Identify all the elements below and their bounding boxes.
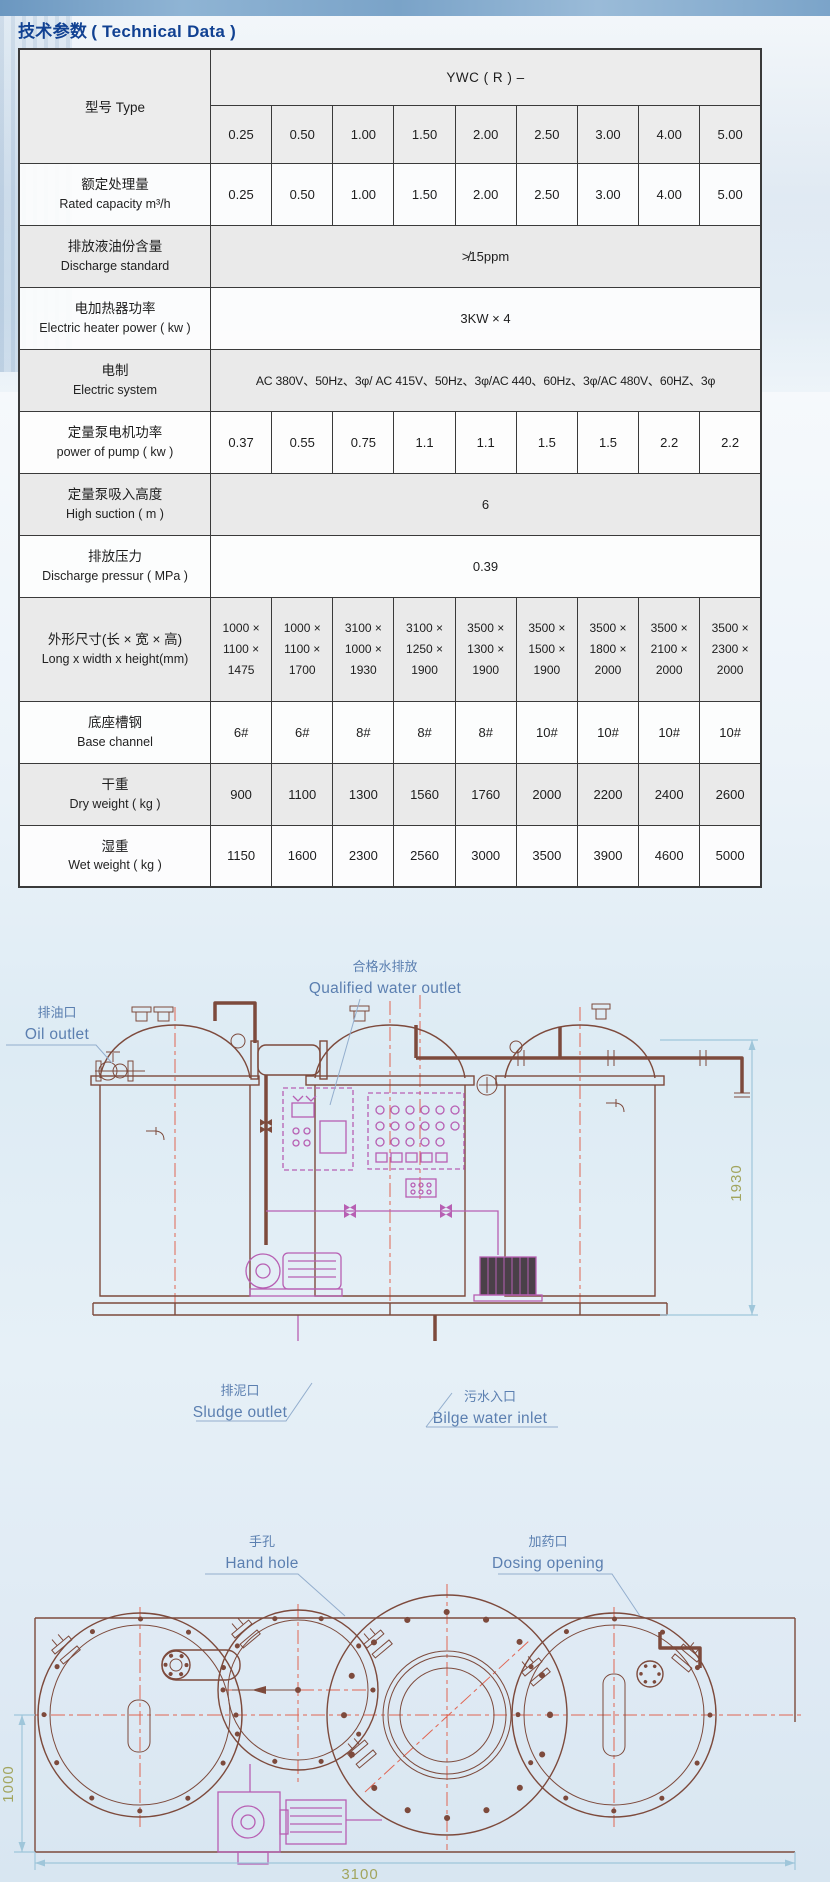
row-value: 0.25	[211, 163, 272, 225]
row-label-en: Dry weight ( kg )	[22, 796, 208, 814]
size-header-cell: 1.00	[333, 105, 394, 163]
spec-row: 湿重Wet weight ( kg )115016002300256030003…	[19, 825, 761, 887]
spec-row: 额定处理量Rated capacity m³/h0.250.501.001.50…	[19, 163, 761, 225]
row-value: 1300	[333, 763, 394, 825]
row-value: 4.00	[639, 163, 700, 225]
row-value: 1600	[272, 825, 333, 887]
row-value: 2.00	[455, 163, 516, 225]
qualified-outlet-leader	[330, 999, 360, 1105]
row-value: 2.2	[700, 411, 761, 473]
oil-outlet-leader	[6, 1045, 112, 1063]
row-value: 1100	[272, 763, 333, 825]
hand-hole-label-en: Hand hole	[225, 1555, 298, 1572]
dosing-pump	[246, 1204, 498, 1341]
qualified-outlet-label-en: Qualified water outlet	[309, 980, 462, 997]
row-value: 3.00	[577, 163, 638, 225]
oil-outlet-label-zh: 排油口	[37, 1005, 76, 1020]
row-value: 0.75	[333, 411, 394, 473]
row-value: 2200	[577, 763, 638, 825]
bilge-inlet-label-zh: 污水入口	[464, 1389, 516, 1404]
page-title-en: ( Technical Data )	[91, 22, 236, 41]
size-header-cell: 1.50	[394, 105, 455, 163]
size-header-cell: 0.25	[211, 105, 272, 163]
row-span-value: 0.39	[211, 535, 762, 597]
header-row-series: 型号 TypeYWC ( R ) –	[19, 49, 761, 105]
row-value: 900	[211, 763, 272, 825]
technical-data-table: 型号 TypeYWC ( R ) –0.250.501.001.502.002.…	[18, 48, 762, 888]
row-value: 5000	[700, 825, 761, 887]
row-label-en: Wet weight ( kg )	[22, 857, 208, 875]
type-header: 型号 Type	[19, 49, 211, 163]
row-label: 排放压力Discharge pressur ( MPa )	[19, 535, 211, 597]
width-dimension: 1000	[0, 1715, 35, 1852]
row-span-value: ≯15ppm	[211, 225, 762, 287]
row-label-en: Discharge standard	[22, 258, 208, 276]
row-value: 1.1	[394, 411, 455, 473]
row-label-zh: 排放压力	[22, 547, 208, 568]
row-value: 1.5	[577, 411, 638, 473]
row-value: 4600	[639, 825, 700, 887]
spec-row: 电制Electric systemAC 380V、50Hz、3φ/ AC 415…	[19, 349, 761, 411]
plan-centerlines	[25, 1584, 805, 1850]
dosing-label-en: Dosing opening	[492, 1555, 604, 1572]
size-header-cell: 2.50	[516, 105, 577, 163]
row-label: 底座槽钢Base channel	[19, 701, 211, 763]
page-title: 技术参数( Technical Data )	[18, 17, 236, 42]
spec-row: 干重Dry weight ( kg )900110013001560176020…	[19, 763, 761, 825]
discharge-pump	[474, 1257, 542, 1301]
plan-view-drawing: 1000 3100 手孔 Hand hole 加药口 Dosing openin…	[0, 1522, 830, 1882]
row-value: 10#	[577, 701, 638, 763]
row-label-zh: 电制	[22, 361, 208, 382]
row-label: 湿重Wet weight ( kg )	[19, 825, 211, 887]
row-value: 0.37	[211, 411, 272, 473]
height-dimension-text: 1930	[728, 1164, 745, 1201]
row-value: 3500 × 2300 × 2000	[700, 597, 761, 701]
row-span-value: 3KW × 4	[211, 287, 762, 349]
spec-row: 电加热器功率Electric heater power ( kw )3KW × …	[19, 287, 761, 349]
row-label: 定量泵吸入高度High suction ( m )	[19, 473, 211, 535]
row-span-value: AC 380V、50Hz、3φ/ AC 415V、50Hz、3φ/AC 440、…	[211, 349, 762, 411]
row-label: 排放液油份含量Discharge standard	[19, 225, 211, 287]
row-value: 2300	[333, 825, 394, 887]
bottom-photo-strip	[0, 0, 830, 16]
length-dimension: 3100	[35, 1852, 795, 1882]
dosing-label-zh: 加药口	[528, 1534, 567, 1549]
spec-row: 排放压力Discharge pressur ( MPa )0.39	[19, 535, 761, 597]
row-value: 3500	[516, 825, 577, 887]
size-header-cell: 3.00	[577, 105, 638, 163]
hand-hole-leader	[205, 1574, 345, 1616]
row-value: 2600	[700, 763, 761, 825]
row-label: 额定处理量Rated capacity m³/h	[19, 163, 211, 225]
row-label-zh: 排放液油份含量	[22, 237, 208, 258]
row-value: 1.00	[333, 163, 394, 225]
row-value: 5.00	[700, 163, 761, 225]
row-value: 1760	[455, 763, 516, 825]
row-label-en: High suction ( m )	[22, 506, 208, 524]
spec-row: 定量泵电机功率power of pump ( kw )0.370.550.751…	[19, 411, 761, 473]
row-value: 8#	[394, 701, 455, 763]
row-value: 3900	[577, 825, 638, 887]
row-value: 2400	[639, 763, 700, 825]
bilge-inlet-label-en: Bilge water inlet	[433, 1410, 548, 1427]
row-value: 3500 × 1800 × 2000	[577, 597, 638, 701]
oil-outlet-label-en: Oil outlet	[25, 1026, 90, 1043]
row-label-en: power of pump ( kw )	[22, 444, 208, 462]
row-value: 2.50	[516, 163, 577, 225]
row-value: 1.50	[394, 163, 455, 225]
row-value: 2.2	[639, 411, 700, 473]
size-header-cell: 2.00	[455, 105, 516, 163]
row-label-zh: 电加热器功率	[22, 299, 208, 320]
spec-row: 排放液油份含量Discharge standard≯15ppm	[19, 225, 761, 287]
row-label-en: Electric system	[22, 382, 208, 400]
page-title-zh: 技术参数	[18, 22, 87, 41]
spec-row: 外形尺寸(长 × 宽 × 高)Long x width x height(mm)…	[19, 597, 761, 701]
size-header-cell: 5.00	[700, 105, 761, 163]
width-dimension-text: 1000	[0, 1765, 17, 1802]
pump-plan	[218, 1764, 382, 1864]
row-label-zh: 干重	[22, 775, 208, 796]
spec-row: 底座槽钢Base channel6#6#8#8#8#10#10#10#10#	[19, 701, 761, 763]
row-label-en: Base channel	[22, 734, 208, 752]
base-frame	[93, 1303, 667, 1315]
row-label-en: Rated capacity m³/h	[22, 196, 208, 214]
row-value: 2000	[516, 763, 577, 825]
row-value: 3100 × 1250 × 1900	[394, 597, 455, 701]
row-value: 3500 × 1300 × 1900	[455, 597, 516, 701]
front-view-drawing: 1930 排油口 Oil outlet 合格水排放 Qualified wate…	[0, 955, 800, 1430]
length-dimension-text: 3100	[341, 1866, 378, 1882]
row-value: 10#	[516, 701, 577, 763]
row-value: 1.5	[516, 411, 577, 473]
row-label: 电制Electric system	[19, 349, 211, 411]
row-label-zh: 湿重	[22, 837, 208, 858]
row-value: 3500 × 2100 × 2000	[639, 597, 700, 701]
size-header-cell: 0.50	[272, 105, 333, 163]
dosing-leader	[498, 1574, 640, 1616]
row-span-value: 6	[211, 473, 762, 535]
row-value: 2560	[394, 825, 455, 887]
row-label-zh: 外形尺寸(长 × 宽 × 高)	[22, 630, 208, 651]
row-value: 3100 × 1000 × 1930	[333, 597, 394, 701]
hand-hole-label-zh: 手孔	[249, 1534, 275, 1549]
sludge-outlet-label-en: Sludge outlet	[193, 1404, 288, 1421]
row-label: 定量泵电机功率power of pump ( kw )	[19, 411, 211, 473]
row-value: 1000 × 1100 × 1475	[211, 597, 272, 701]
dosing-pipe	[637, 1632, 700, 1687]
row-value: 6#	[272, 701, 333, 763]
row-label-zh: 定量泵电机功率	[22, 423, 208, 444]
row-value: 1.1	[455, 411, 516, 473]
row-value: 10#	[639, 701, 700, 763]
control-panels	[283, 1088, 464, 1197]
row-value: 1560	[394, 763, 455, 825]
row-value: 1150	[211, 825, 272, 887]
sludge-outlet-label-zh: 排泥口	[220, 1383, 259, 1398]
row-label: 干重Dry weight ( kg )	[19, 763, 211, 825]
row-label-en: Long x width x height(mm)	[22, 651, 208, 669]
series-header: YWC ( R ) –	[211, 49, 762, 105]
row-label-en: Discharge pressur ( MPa )	[22, 568, 208, 586]
row-value: 1000 × 1100 × 1700	[272, 597, 333, 701]
row-value: 3000	[455, 825, 516, 887]
row-label: 电加热器功率Electric heater power ( kw )	[19, 287, 211, 349]
row-value: 3500 × 1500 × 1900	[516, 597, 577, 701]
row-label-zh: 额定处理量	[22, 175, 208, 196]
row-label-en: Electric heater power ( kw )	[22, 320, 208, 338]
row-label: 外形尺寸(长 × 宽 × 高)Long x width x height(mm)	[19, 597, 211, 701]
piping	[95, 1003, 750, 1341]
row-value: 6#	[211, 701, 272, 763]
size-header-cell: 4.00	[639, 105, 700, 163]
row-value: 0.55	[272, 411, 333, 473]
row-value: 8#	[333, 701, 394, 763]
row-value: 8#	[455, 701, 516, 763]
row-value: 0.50	[272, 163, 333, 225]
row-label-zh: 底座槽钢	[22, 713, 208, 734]
row-value: 10#	[700, 701, 761, 763]
spec-row: 定量泵吸入高度High suction ( m )6	[19, 473, 761, 535]
qualified-outlet-label-zh: 合格水排放	[352, 959, 417, 974]
row-label-zh: 定量泵吸入高度	[22, 485, 208, 506]
